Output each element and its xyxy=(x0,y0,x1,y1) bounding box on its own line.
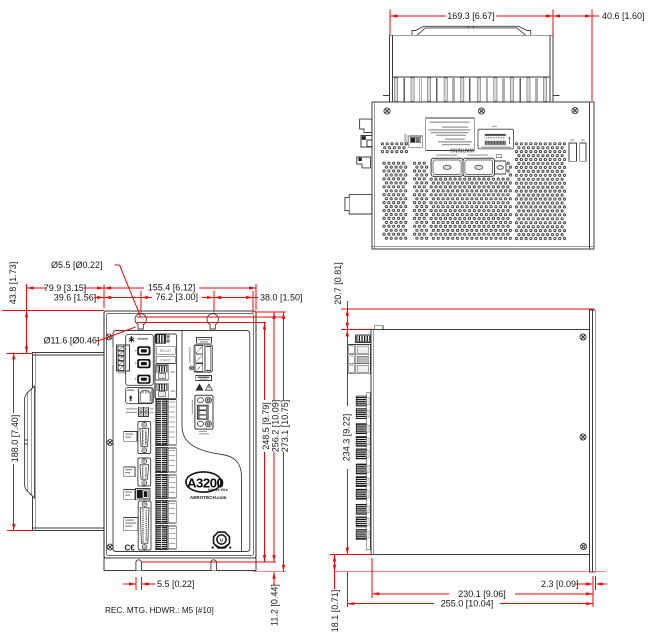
svg-text:Ø11.6 [Ø0.46]: Ø11.6 [Ø0.46] xyxy=(44,335,100,345)
svg-text:39.6 [1.56]: 39.6 [1.56] xyxy=(54,293,97,303)
svg-text:RELAY: RELAY xyxy=(160,349,172,353)
svg-text:43.8 [1.73]: 43.8 [1.73] xyxy=(8,262,18,305)
svg-text:11.2 [0.44]: 11.2 [0.44] xyxy=(270,584,280,626)
svg-text:230.1 [9.06]: 230.1 [9.06] xyxy=(458,589,506,599)
svg-text:U: U xyxy=(220,538,223,543)
svg-text:20.7 [0.81]: 20.7 [0.81] xyxy=(333,262,343,305)
svg-text:234.3 [9.22]: 234.3 [9.22] xyxy=(341,414,351,462)
svg-text:START: START xyxy=(160,358,171,362)
svg-text:188.0 [7.40]: 188.0 [7.40] xyxy=(10,415,20,463)
svg-text:38.0 [1.50]: 38.0 [1.50] xyxy=(260,293,303,303)
svg-text:WARNING: WARNING xyxy=(450,146,474,152)
svg-text:C€: C€ xyxy=(125,544,136,553)
svg-text:79.9 [3.15]: 79.9 [3.15] xyxy=(44,283,87,293)
svg-text:5.5 [0.22]: 5.5 [0.22] xyxy=(157,579,195,589)
svg-text:AEROTECH.com: AEROTECH.com xyxy=(190,495,227,500)
svg-text:76.2 [3.00]: 76.2 [3.00] xyxy=(156,292,199,302)
svg-text:40.6 [1.60]: 40.6 [1.60] xyxy=(602,11,645,21)
svg-text:169.3 [6.67]: 169.3 [6.67] xyxy=(447,11,495,21)
svg-text:256.2 [10.09]: 256.2 [10.09] xyxy=(271,400,281,453)
svg-text:Ø5.5 [Ø0.22]: Ø5.5 [Ø0.22] xyxy=(51,260,103,270)
svg-text:Ndrive HLe: Ndrive HLe xyxy=(208,488,228,492)
svg-text:273.1 [10.75]: 273.1 [10.75] xyxy=(280,400,290,453)
svg-text:155.4 [6.12]: 155.4 [6.12] xyxy=(148,283,196,293)
svg-text:REC. MTG. HDWR.: M5 [#10]: REC. MTG. HDWR.: M5 [#10] xyxy=(105,606,214,615)
svg-text:255.0 [10.04]: 255.0 [10.04] xyxy=(441,599,494,609)
svg-text:248.5 [9.79]: 248.5 [9.79] xyxy=(261,402,271,450)
svg-text:2.3 [0.09]: 2.3 [0.09] xyxy=(541,579,579,589)
svg-text:18.1 [0.71]: 18.1 [0.71] xyxy=(330,590,340,633)
